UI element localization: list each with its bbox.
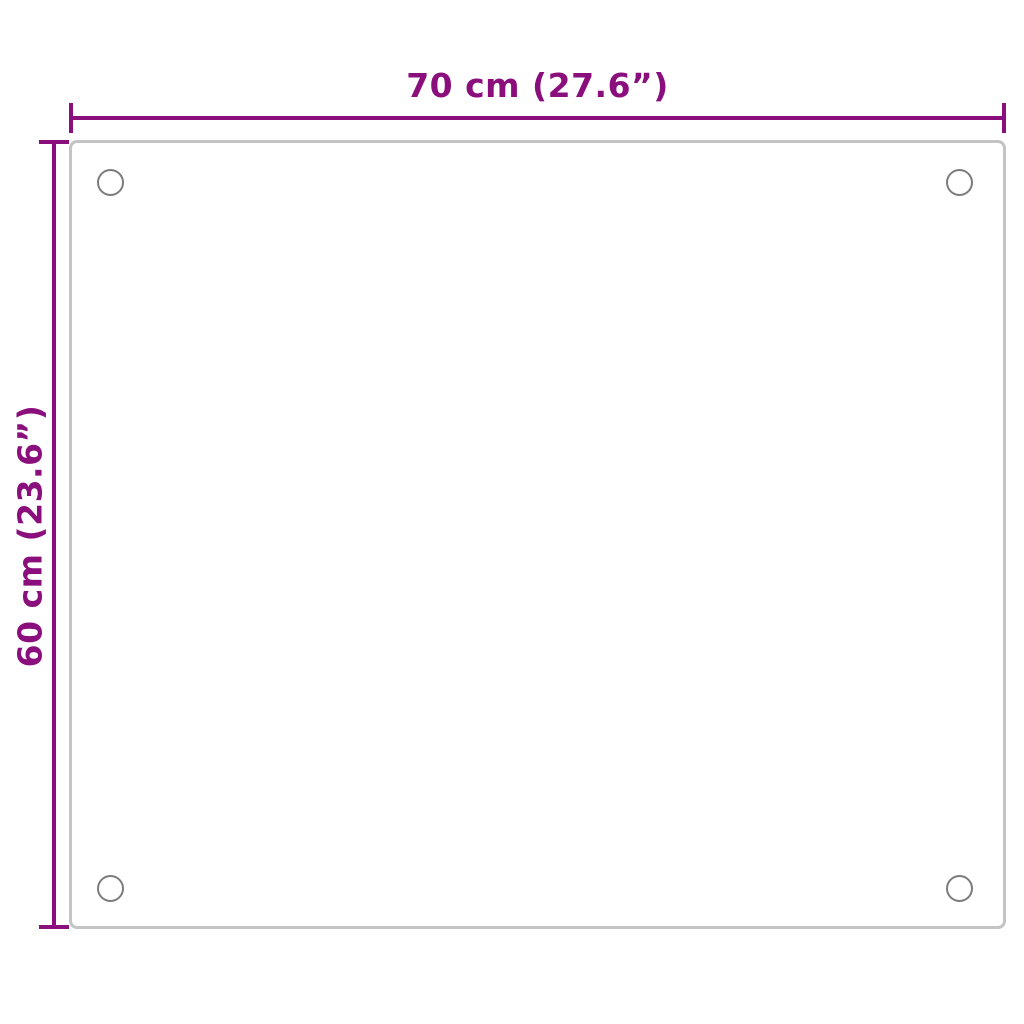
width-dimension-label: 70 cm (27.6”) bbox=[69, 66, 1006, 105]
height-dimension-label: 60 cm (23.6”) bbox=[11, 142, 51, 931]
width-dimension-tick-right bbox=[1002, 103, 1006, 133]
glass-panel bbox=[69, 140, 1006, 929]
height-dimension-line bbox=[52, 140, 56, 929]
height-dimension-tick-bottom bbox=[39, 925, 69, 929]
product-dimension-diagram: 70 cm (27.6”) 60 cm (23.6”) bbox=[0, 0, 1024, 1024]
mounting-hole-bottom-right bbox=[946, 875, 973, 902]
mounting-hole-top-left bbox=[97, 169, 124, 196]
mounting-hole-bottom-left bbox=[97, 875, 124, 902]
width-dimension-tick-left bbox=[69, 103, 73, 133]
height-dimension-tick-top bbox=[39, 140, 69, 144]
width-dimension-line bbox=[69, 116, 1006, 120]
mounting-hole-top-right bbox=[946, 169, 973, 196]
